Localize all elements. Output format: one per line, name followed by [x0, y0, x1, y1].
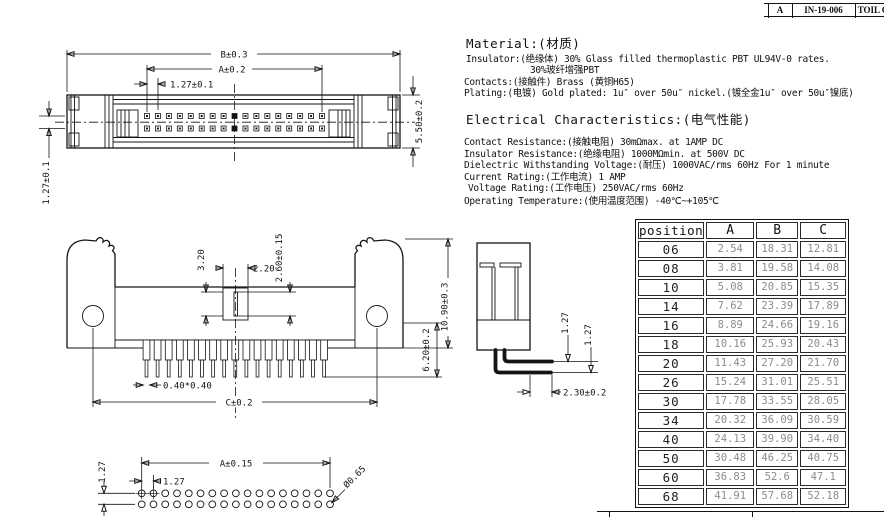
table-row: 08 3.81 19.58 14.08: [638, 260, 846, 277]
table-row: 10 5.08 20.85 15.35: [638, 279, 846, 296]
electrical-operating-temp: Operating Temperature:(使用温度范围) -40℃~+105…: [464, 193, 719, 207]
revision-note: TOIL C: [856, 5, 884, 15]
cell-position: 26: [638, 374, 704, 391]
cell-b: 24.66: [756, 317, 798, 334]
cell-position: 14: [638, 298, 704, 315]
dim-tail-label: 2.30±0.2: [563, 389, 606, 399]
cell-c: 52.18: [800, 488, 846, 505]
dim-slot-label: 2.60±0.15: [275, 234, 285, 283]
dim-side-pitch2-label: 1.27: [584, 324, 594, 346]
cell-c: 34.40: [800, 431, 846, 448]
dim-span-label: C±0.2: [225, 399, 252, 409]
datasheet-page: B±0.3 A±0.2 1.27±0.1 5.50±0.2 1.27±0.1 3…: [0, 0, 884, 517]
dim-row-pitch-label: 1.27±0.1: [42, 161, 52, 204]
col-header-position: position: [638, 222, 704, 239]
cell-b: 31.01: [756, 374, 798, 391]
dim-b-label: B±0.3: [220, 51, 247, 61]
cell-a: 15.24: [706, 374, 754, 391]
side-view-drawing: 1.27 1.27 2.30±0.2: [465, 235, 640, 415]
cell-c: 17.89: [800, 298, 846, 315]
cell-c: 28.05: [800, 393, 846, 410]
col-header-a: A: [706, 222, 754, 239]
cell-c: 19.16: [800, 317, 846, 334]
cell-a: 20.32: [706, 412, 754, 429]
cell-c: 25.51: [800, 374, 846, 391]
cell-a: 10.16: [706, 336, 754, 353]
cell-position: 30: [638, 393, 704, 410]
cell-a: 8.89: [706, 317, 754, 334]
cell-position: 18: [638, 336, 704, 353]
table-row: 18 10.16 25.93 20.43: [638, 336, 846, 353]
cell-position: 40: [638, 431, 704, 448]
cell-b: 19.58: [756, 260, 798, 277]
dim-key-width-label: 2.20: [253, 265, 275, 275]
cell-b: 39.90: [756, 431, 798, 448]
cell-b: 18.31: [756, 241, 798, 258]
dim-hole-dia-label: Ø0.65: [341, 464, 368, 491]
table-row: 60 36.83 52.6 47.1: [638, 469, 846, 486]
cell-position: 60: [638, 469, 704, 486]
cell-position: 20: [638, 355, 704, 372]
cell-b: 52.6: [756, 469, 798, 486]
electrical-heading: Electrical Characteristics:(电气性能): [466, 109, 751, 128]
spec-table-header-row: position A B C: [638, 222, 846, 239]
dim-side-pitch1-label: 1.27: [561, 312, 571, 334]
cell-position: 34: [638, 412, 704, 429]
cell-a: 7.62: [706, 298, 754, 315]
cell-position: 50: [638, 450, 704, 467]
cell-c: 21.70: [800, 355, 846, 372]
dim-a-label: A±0.2: [218, 66, 245, 76]
cell-a: 41.91: [706, 488, 754, 505]
dim-fp-a-label: A±0.15: [220, 460, 253, 470]
cell-position: 06: [638, 241, 704, 258]
cell-b: 25.93: [756, 336, 798, 353]
table-row: 34 20.32 36.09 30.59: [638, 412, 846, 429]
dim-pitch-label: 1.27±0.1: [170, 81, 213, 91]
cell-position: 68: [638, 488, 704, 505]
cell-a: 17.78: [706, 393, 754, 410]
cell-a: 11.43: [706, 355, 754, 372]
cell-position: 16: [638, 317, 704, 334]
cell-c: 20.43: [800, 336, 846, 353]
latch-hole-right: [367, 306, 388, 327]
cell-b: 57.68: [756, 488, 798, 505]
cell-b: 27.20: [756, 355, 798, 372]
table-row: 26 15.24 31.01 25.51: [638, 374, 846, 391]
table-row: 14 7.62 23.39 17.89: [638, 298, 846, 315]
cell-a: 30.48: [706, 450, 754, 467]
hole-array: [136, 487, 334, 507]
material-heading: Material:(材质): [466, 33, 580, 52]
cell-a: 2.54: [706, 241, 754, 258]
dim-fp-row-pitch-label: 1.27: [98, 461, 108, 483]
dim-height-label: 5.50±0.2: [415, 100, 425, 143]
dim-pin-length-label: 6.20±0.2: [422, 328, 432, 371]
table-row: 06 2.54 18.31 12.81: [638, 241, 846, 258]
cell-b: 20.85: [756, 279, 798, 296]
table-row: 68 41.91 57.68 52.18: [638, 488, 846, 505]
cell-c: 40.75: [800, 450, 846, 467]
dim-pin-square-label: 0.40*0.40: [163, 382, 212, 392]
dim-fp-pitch-label: 1.27: [163, 478, 185, 488]
dim-total-height-label: 10.90±0.3: [441, 283, 451, 332]
cell-c: 47.1: [800, 469, 846, 486]
front-view-drawing: 3.20 2.20 2.60±0.15 6.20±0.2 10.90±0.3 0…: [40, 232, 470, 424]
top-view-drawing: B±0.3 A±0.2 1.27±0.1 5.50±0.2 1.27±0.1: [30, 28, 460, 218]
cell-a: 5.08: [706, 279, 754, 296]
table-row: 50 30.48 46.25 40.75: [638, 450, 846, 467]
cell-position: 10: [638, 279, 704, 296]
cell-b: 33.55: [756, 393, 798, 410]
spec-table: position A B C 06 2.54 18.31 12.81 08 3.…: [635, 219, 849, 508]
footprint-drawing: A±0.15 1.27 1.27 Ø0.65: [90, 445, 412, 517]
cell-position: 08: [638, 260, 704, 277]
document-number: IN-19-006: [792, 5, 855, 15]
dim-key-height-label: 3.20: [197, 249, 207, 271]
cell-c: 14.08: [800, 260, 846, 277]
cell-c: 30.59: [800, 412, 846, 429]
cell-b: 36.09: [756, 412, 798, 429]
cell-a: 24.13: [706, 431, 754, 448]
table-row: 20 11.43 27.20 21.70: [638, 355, 846, 372]
col-header-c: C: [800, 222, 846, 239]
table-row: 40 24.13 39.90 34.40: [638, 431, 846, 448]
revision-letter: A: [768, 5, 792, 15]
material-insulator-line1: Insulator:(绝缘体) 30% Glass filled thermop…: [466, 51, 830, 65]
cell-a: 36.83: [706, 469, 754, 486]
cell-c: 12.81: [800, 241, 846, 258]
latch-hole-left: [83, 306, 104, 327]
table-row: 16 8.89 24.66 19.16: [638, 317, 846, 334]
cell-a: 3.81: [706, 260, 754, 277]
table-row: 30 17.78 33.55 28.05: [638, 393, 846, 410]
cell-b: 46.25: [756, 450, 798, 467]
material-plating: Plating:(电镀) Gold plated: 1u″ over 50u″ …: [464, 85, 854, 99]
col-header-b: B: [756, 222, 798, 239]
spec-table-body: 06 2.54 18.31 12.81 08 3.81 19.58 14.08 …: [638, 241, 846, 505]
cell-c: 15.35: [800, 279, 846, 296]
cell-b: 23.39: [756, 298, 798, 315]
